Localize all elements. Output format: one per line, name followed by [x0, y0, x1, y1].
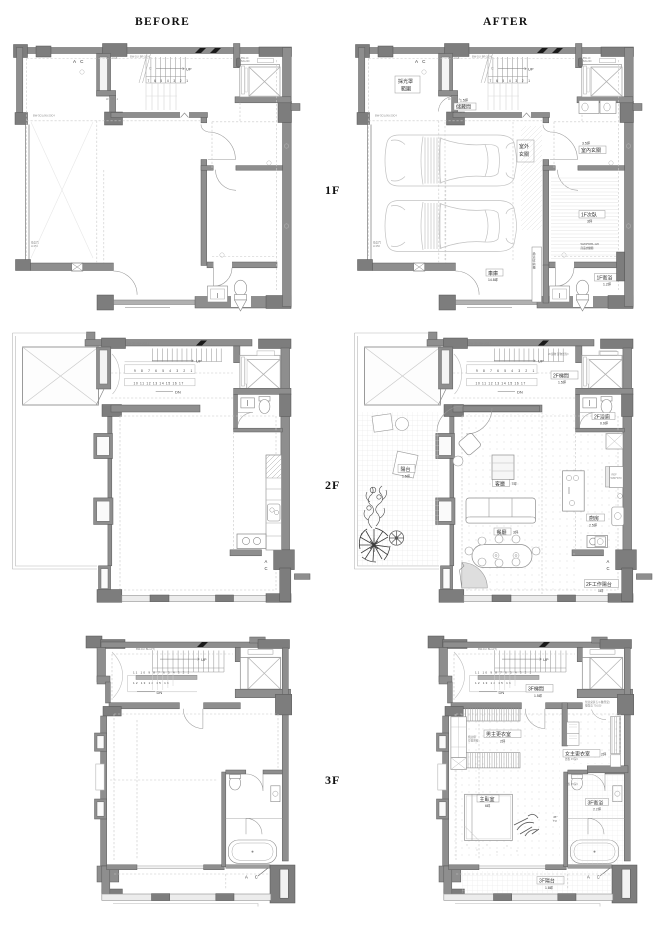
svg-text:客廳: 客廳 — [495, 480, 505, 487]
svg-text:儲藏間: 儲藏間 — [456, 104, 471, 111]
svg-text:過道收納櫃: 過道收納櫃 — [532, 251, 536, 270]
svg-text:男主更衣室: 男主更衣室 — [486, 731, 511, 738]
svg-text:0.9坪: 0.9坪 — [600, 421, 609, 426]
svg-text:1.2坪: 1.2坪 — [603, 282, 612, 287]
svg-text:7坪: 7坪 — [512, 481, 518, 486]
svg-text:6坪: 6坪 — [485, 803, 491, 808]
svg-text:1.5坪: 1.5坪 — [460, 98, 469, 103]
svg-text:3坪: 3坪 — [513, 530, 519, 535]
svg-text:主臥室: 主臥室 — [480, 796, 495, 803]
svg-text:室內玄關: 室內玄關 — [581, 147, 601, 154]
svg-text:2.5坪: 2.5坪 — [589, 523, 598, 528]
svg-text:2F儲物 置物層架±: 2F儲物 置物層架± — [548, 352, 569, 356]
svg-text:梳妝檯: 梳妝檯 — [468, 735, 476, 739]
svg-text:檯面高 75公分: 檯面高 75公分 — [585, 704, 602, 708]
svg-text:REF: REF — [612, 473, 618, 477]
svg-text:位置預留: 位置預留 — [468, 739, 479, 743]
svg-text:車庫: 車庫 — [488, 270, 498, 277]
svg-text:範圍: 範圍 — [401, 86, 411, 93]
svg-text:3.5坪: 3.5坪 — [582, 141, 591, 146]
svg-text:W80*D70: W80*D70 — [611, 476, 623, 480]
svg-text:2坪: 2坪 — [500, 739, 506, 744]
svg-text:3坪: 3坪 — [587, 219, 593, 224]
svg-text:TV: TV — [553, 819, 557, 823]
svg-text:層板 45深6: 層板 45深6 — [565, 757, 578, 761]
svg-text:2F梯間: 2F梯間 — [553, 372, 569, 379]
svg-text:商品衣櫃體: 商品衣櫃體 — [581, 246, 594, 250]
svg-text:廚房: 廚房 — [589, 515, 599, 522]
svg-text:2坪: 2坪 — [601, 752, 607, 757]
svg-text:2F浴廁: 2F浴廁 — [594, 413, 610, 420]
svg-text:W203*D85~120: W203*D85~120 — [581, 242, 600, 246]
svg-text:1.5坪: 1.5坪 — [402, 474, 411, 479]
svg-text:1F衛浴: 1F衛浴 — [597, 275, 613, 282]
svg-text:女主更衣室: 女主更衣室 — [565, 751, 590, 758]
svg-text:2F工作陽台: 2F工作陽台 — [586, 581, 612, 588]
svg-text:餐廳: 餐廳 — [497, 529, 507, 536]
svg-text:陽台: 陽台 — [401, 466, 411, 473]
svg-text:W-T1270.1: W-T1270.1 — [454, 111, 467, 115]
svg-text:採光罩: 採光罩 — [398, 78, 413, 85]
svg-text:化妝桌併五斗櫃(暫定): 化妝桌併五斗櫃(暫定) — [585, 700, 610, 704]
svg-text:14.8坪: 14.8坪 — [488, 277, 499, 282]
svg-text:1F次臥: 1F次臥 — [581, 212, 597, 219]
svg-text:1坪: 1坪 — [598, 588, 604, 593]
svg-text:層板 45深6: 層板 45深6 — [565, 782, 578, 786]
svg-text:1.5坪: 1.5坪 — [534, 693, 543, 698]
svg-text:1.5坪: 1.5坪 — [558, 379, 567, 384]
svg-text:3F梯間: 3F梯間 — [528, 686, 544, 693]
